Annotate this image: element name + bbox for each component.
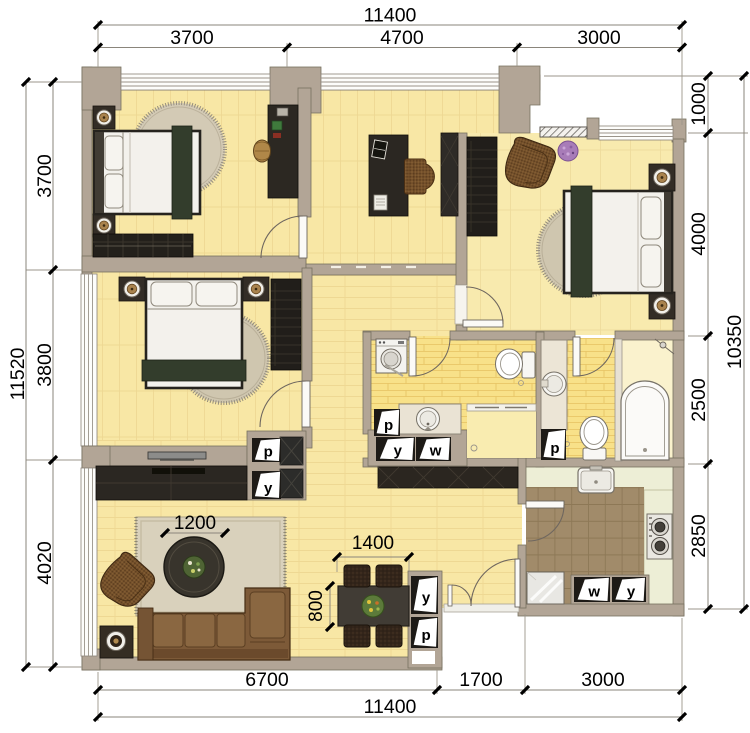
svg-text:4700: 4700 <box>380 27 424 49</box>
svg-text:1000: 1000 <box>688 82 710 126</box>
svg-text:2500: 2500 <box>688 378 710 422</box>
svg-text:p: p <box>550 440 559 457</box>
svg-text:1200: 1200 <box>174 513 216 534</box>
svg-text:3800: 3800 <box>34 343 56 387</box>
svg-text:p: p <box>384 417 393 434</box>
svg-text:y: y <box>422 590 431 607</box>
svg-text:11400: 11400 <box>364 5 417 27</box>
svg-text:11400: 11400 <box>364 696 417 718</box>
svg-text:y: y <box>627 584 636 601</box>
svg-text:4000: 4000 <box>688 212 710 256</box>
svg-text:10350: 10350 <box>724 315 746 369</box>
svg-text:w: w <box>587 584 600 601</box>
svg-text:w: w <box>429 443 442 460</box>
svg-text:3700: 3700 <box>34 154 56 198</box>
svg-text:2850: 2850 <box>688 514 710 558</box>
svg-text:4020: 4020 <box>34 541 56 585</box>
svg-text:1700: 1700 <box>459 669 503 691</box>
svg-text:3000: 3000 <box>577 27 621 49</box>
svg-text:1400: 1400 <box>352 533 394 554</box>
svg-text:6700: 6700 <box>245 669 289 691</box>
svg-text:y: y <box>264 480 273 497</box>
svg-text:3700: 3700 <box>170 27 214 49</box>
svg-text:11520: 11520 <box>7 347 29 400</box>
svg-text:y: y <box>394 443 403 460</box>
svg-text:p: p <box>264 444 273 461</box>
svg-text:3000: 3000 <box>581 669 625 691</box>
svg-text:800: 800 <box>306 590 327 622</box>
svg-text:p: p <box>422 627 431 644</box>
